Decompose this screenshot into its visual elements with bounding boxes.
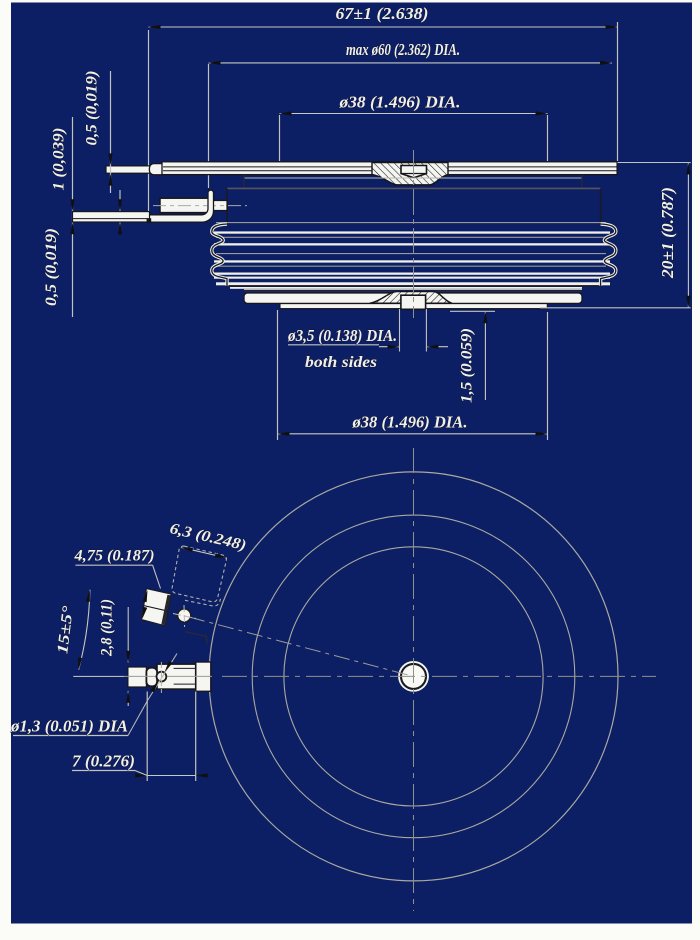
svg-text:4,75 (0.187): 4,75 (0.187) bbox=[73, 548, 154, 565]
svg-text:1,5 (0.059): 1,5 (0.059) bbox=[459, 328, 476, 403]
svg-text:0,5 (0,019): 0,5 (0,019) bbox=[43, 228, 60, 306]
svg-text:max ø60 (2.362) DIA.: max ø60 (2.362) DIA. bbox=[346, 40, 460, 59]
svg-text:ø1,3 (0.051) DIA: ø1,3 (0.051) DIA bbox=[10, 717, 128, 736]
svg-text:2,8 (0,11): 2,8 (0,11) bbox=[99, 599, 116, 657]
svg-text:7 (0.276): 7 (0.276) bbox=[72, 752, 135, 771]
svg-text:20±1 (0.787): 20±1 (0.787) bbox=[658, 187, 677, 279]
svg-text:1 (0,039): 1 (0,039) bbox=[51, 128, 68, 191]
svg-text:ø3,5 (0.138) DIA.: ø3,5 (0.138) DIA. bbox=[287, 326, 397, 345]
svg-text:ø38 (1.496) DIA.: ø38 (1.496) DIA. bbox=[352, 413, 468, 432]
svg-text:ø38 (1.496) DIA.: ø38 (1.496) DIA. bbox=[338, 93, 460, 112]
svg-text:both sides: both sides bbox=[305, 354, 377, 371]
svg-text:0,5 (0,019): 0,5 (0,019) bbox=[84, 71, 101, 146]
svg-text:67±1 (2.638): 67±1 (2.638) bbox=[336, 4, 429, 23]
